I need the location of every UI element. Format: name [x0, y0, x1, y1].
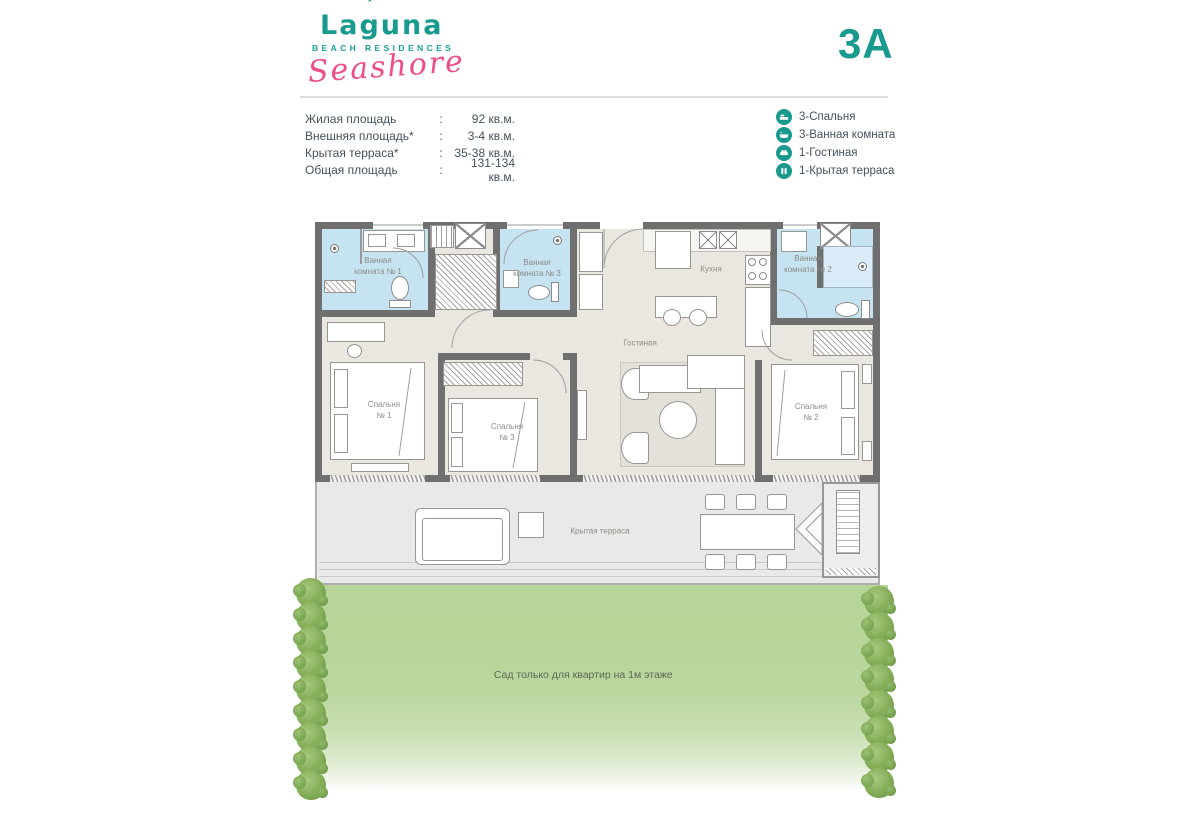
tv-stand	[577, 390, 587, 440]
room-label-bathroom-3: Ванная комната № 3	[513, 258, 561, 280]
brand-name: Laguna	[308, 12, 528, 39]
dining-chair	[767, 554, 787, 570]
dining-chair	[705, 554, 725, 570]
apartment-unit: Ванная комната № 1 Ванная комната № 3 Ва…	[315, 222, 880, 482]
garden: Сад только для квартир на 1м этаже	[313, 585, 888, 788]
room-label-bedroom-3: Спальня № 3	[491, 422, 523, 444]
spec-label: Внешняя площадь*	[305, 129, 433, 143]
sink	[397, 234, 415, 247]
daybed-cushion	[422, 518, 503, 561]
spec-row: Жилая площадь : 92 кв.м.	[305, 110, 515, 127]
armchair	[621, 432, 649, 464]
terrace-icon	[776, 163, 792, 179]
nightstand	[862, 364, 872, 384]
spec-value: 92 кв.м.	[449, 112, 515, 126]
pillow	[334, 369, 348, 408]
stool	[663, 309, 681, 326]
room-label-bathroom-1: Ванная комната № 1	[354, 256, 402, 278]
window	[507, 222, 563, 229]
spec-value: 3-4 кв.м.	[449, 129, 515, 143]
unit-code: 3A	[838, 20, 894, 68]
nightstand	[862, 441, 872, 461]
terrace-door	[330, 475, 425, 482]
stair-flight	[836, 490, 860, 554]
pillow	[841, 371, 855, 409]
tree-icon	[864, 768, 894, 798]
window	[783, 222, 817, 229]
brand-logo: Laguna BEACH RESIDENCES Seashore	[308, 12, 528, 90]
cabinet	[579, 274, 603, 310]
sofa	[715, 388, 745, 465]
shower-icon	[858, 262, 867, 271]
bathtub-icon	[776, 127, 792, 143]
shower-icon	[553, 236, 562, 245]
dining-chair	[705, 494, 725, 510]
closet	[430, 225, 454, 248]
toilet	[391, 276, 409, 300]
toilet-tank	[389, 300, 411, 308]
round-table	[659, 401, 697, 439]
spec-label: Крытая терраса*	[305, 146, 433, 160]
stool	[347, 344, 362, 358]
tree-icon	[296, 770, 326, 800]
terrace-door	[583, 475, 755, 482]
legend-item: 3-Ванная комната	[776, 126, 895, 144]
toilet	[835, 302, 859, 317]
spec-row: Внешняя площадь* : 3-4 кв.м.	[305, 127, 515, 144]
fridge	[655, 231, 691, 269]
sink	[781, 231, 807, 252]
legend-item: 3-Спальня	[776, 108, 895, 126]
shaft-icon	[455, 223, 486, 249]
floor-plan: Ванная комната № 1 Ванная комната № 3 Ва…	[315, 222, 880, 585]
room-label-living: Гостиная	[623, 339, 657, 350]
dining-chair	[736, 494, 756, 510]
toilet-tank	[551, 282, 559, 302]
header-divider	[300, 96, 888, 98]
terrace-door	[773, 475, 860, 482]
sofa-icon	[776, 145, 792, 161]
walk-in-closet	[435, 254, 497, 310]
kitchen-sink	[699, 231, 717, 249]
closet	[443, 362, 523, 386]
dresser	[327, 322, 385, 342]
legend-label: 3-Ванная комната	[799, 129, 895, 141]
pillow	[451, 403, 463, 433]
room-label-terrace: Крытая терраса	[570, 527, 629, 538]
legend-item: 1-Крытая терраса	[776, 162, 895, 180]
legend: 3-Спальня 3-Ванная комната 1-Гостиная 1-…	[776, 108, 895, 180]
pillow	[334, 414, 348, 453]
room-label-bathroom-2: Ванная комната № 2	[784, 254, 832, 276]
area-specs: Жилая площадь : 92 кв.м. Внешняя площадь…	[305, 110, 515, 178]
garden-note: Сад только для квартир на 1м этаже	[494, 669, 673, 681]
bed-icon	[776, 109, 792, 125]
toilet	[528, 285, 550, 300]
kitchen-counter	[745, 287, 771, 347]
legend-label: 1-Гостиная	[799, 147, 858, 159]
spec-label: Общая площадь	[305, 163, 433, 177]
closet	[813, 330, 873, 356]
shower-bench	[324, 280, 356, 293]
sofa	[687, 355, 745, 389]
dining-chair	[736, 554, 756, 570]
pillow	[451, 437, 463, 467]
floorplan-page: Laguna BEACH RESIDENCES Seashore 3A Жила…	[0, 0, 1200, 840]
cabinet	[579, 232, 603, 272]
kitchen-sink	[719, 231, 737, 249]
shower-icon	[330, 244, 339, 253]
pillow	[841, 417, 855, 455]
spec-label: Жилая площадь	[305, 112, 433, 126]
window	[373, 222, 423, 229]
stairs	[822, 482, 880, 578]
legend-label: 1-Крытая терраса	[799, 165, 894, 177]
sink	[368, 234, 386, 247]
terrace-door	[450, 475, 540, 482]
legend-item: 1-Гостиная	[776, 144, 895, 162]
room-label-bedroom-1: Спальня № 1	[368, 400, 400, 422]
side-table	[518, 512, 544, 538]
dining-table	[700, 514, 795, 550]
spec-value: 131-134 кв.м.	[449, 156, 515, 184]
toilet-tank	[861, 300, 870, 319]
room-label-bedroom-2: Спальня № 2	[795, 402, 827, 424]
dining-chair	[767, 494, 787, 510]
legend-label: 3-Спальня	[799, 111, 855, 123]
bench	[351, 463, 409, 472]
room-label-kitchen: Кухня	[700, 265, 721, 276]
spec-row: Общая площадь : 131-134 кв.м.	[305, 161, 515, 178]
entry-door-opening	[600, 222, 643, 229]
stool	[689, 309, 707, 326]
